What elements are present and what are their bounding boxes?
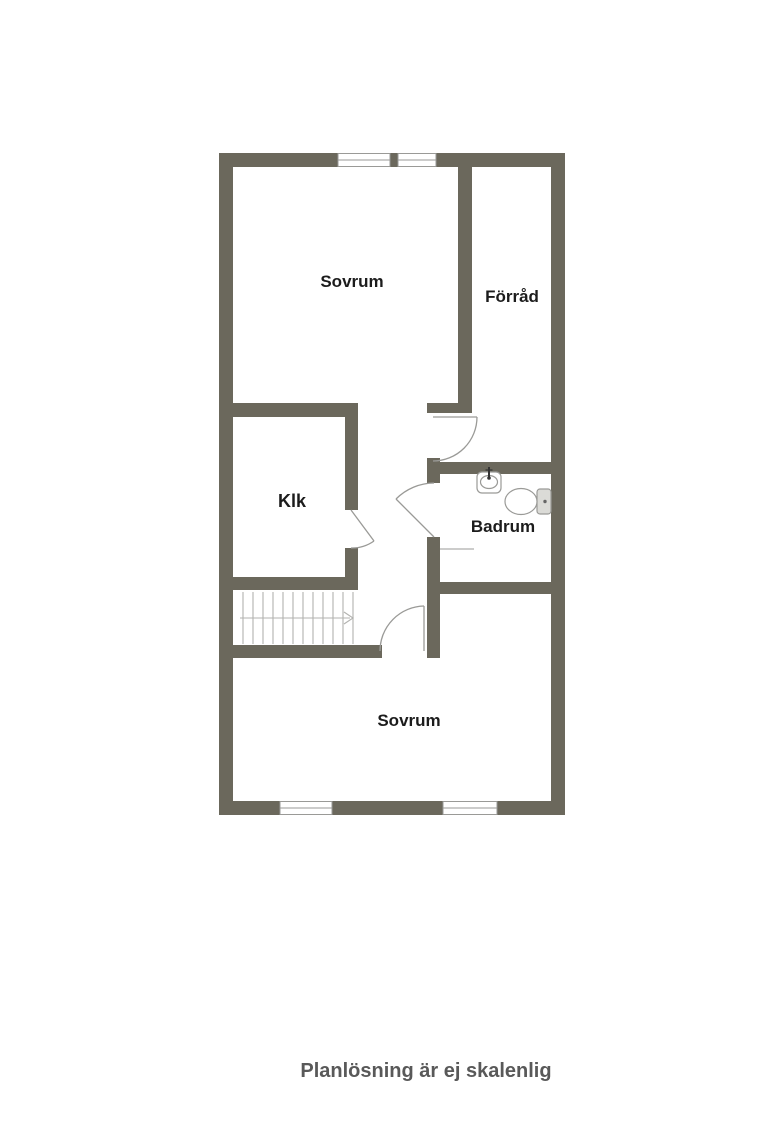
wall-divider-cap: [427, 403, 472, 413]
canvas-background: [0, 0, 768, 1128]
floor-plan-page: Sovrum Förråd Klk Badrum Sovrum Planlösn…: [0, 0, 768, 1128]
wall-stairs-top: [233, 577, 345, 590]
wall-window-mullion: [390, 153, 398, 167]
window-bottom-1: [280, 802, 332, 815]
floor-plan-canvas: Sovrum Förråd Klk Badrum Sovrum Planlösn…: [0, 0, 768, 1128]
room-label-klk: Klk: [278, 491, 307, 511]
wall-klk-right-upper: [345, 417, 358, 510]
wall-divider-sovrum-forrad: [458, 167, 472, 403]
wall-outer-right: [551, 153, 565, 815]
scale-disclaimer-caption: Planlösning är ej skalenlig: [300, 1060, 551, 1082]
wall-outer-left: [219, 153, 233, 815]
wall-sovrum-klk: [233, 403, 358, 417]
room-label-sovrum-lower: Sovrum: [377, 711, 440, 730]
room-label-forrad: Förråd: [485, 287, 539, 306]
wall-outer-bottom: [219, 801, 565, 815]
window-top-2: [398, 154, 436, 167]
wall-stairs-bottom: [233, 645, 382, 658]
wall-hall-east-lower: [427, 537, 440, 658]
wall-hall-east-upper: [427, 458, 440, 483]
window-top-1: [338, 154, 390, 167]
window-bottom-2: [443, 802, 497, 815]
room-label-badrum: Badrum: [471, 517, 535, 536]
toilet-icon: [505, 489, 551, 515]
wall-badrum-bottom: [440, 582, 551, 594]
room-label-sovrum-upper: Sovrum: [320, 272, 383, 291]
wall-klk-right-lower: [345, 548, 358, 590]
